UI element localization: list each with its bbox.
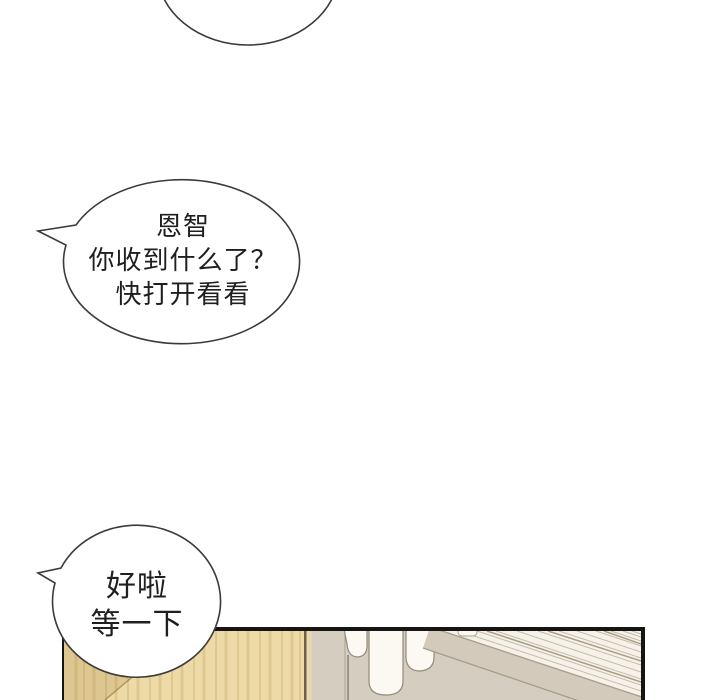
speech-line: 快打开看看 [63,277,303,311]
speech-text-bottom: 好啦 等一下 [47,568,227,644]
speech-bubble-top [150,0,350,60]
comic-page: 恩智 你收到什么了？ 快打开看看 [0,0,720,700]
cabinet-side [307,631,312,700]
white-object [458,631,477,636]
speech-text-middle: 恩智 你收到什么了？ 快打开看看 [63,209,303,311]
cabinet-edge [304,631,307,700]
speech-line: 你收到什么了？ [63,243,303,277]
speech-line: 等一下 [47,606,227,644]
speech-line: 恩智 [63,209,303,243]
speech-bubble-top-outline [157,0,339,45]
speech-line: 好啦 [47,568,227,606]
hanging-cloth-2 [369,631,403,695]
